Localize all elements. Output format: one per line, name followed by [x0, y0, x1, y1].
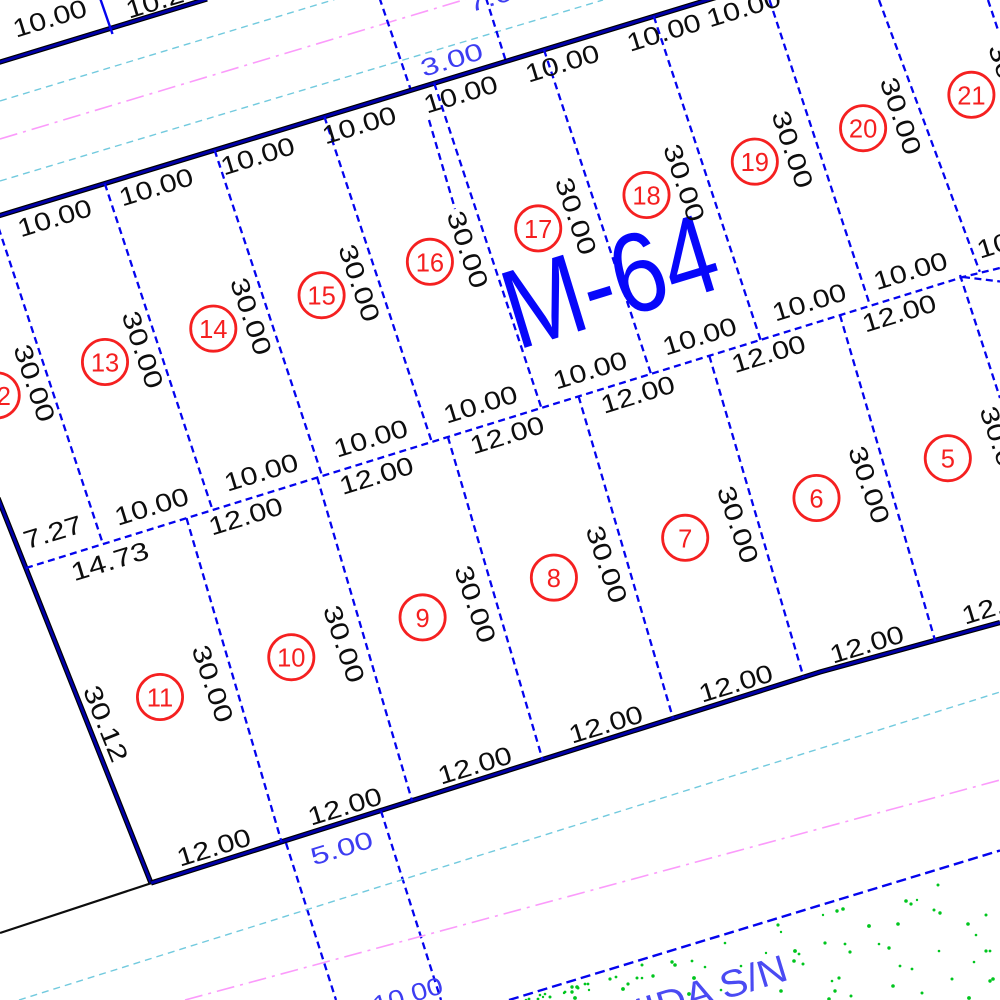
- svg-text:6: 6: [809, 486, 823, 514]
- svg-text:20: 20: [849, 116, 877, 144]
- svg-text:19: 19: [741, 149, 769, 177]
- svg-text:7: 7: [678, 525, 692, 553]
- svg-text:16: 16: [416, 249, 444, 277]
- svg-text:17: 17: [524, 216, 552, 244]
- svg-text:11: 11: [147, 685, 173, 713]
- svg-text:13: 13: [91, 350, 119, 378]
- svg-text:18: 18: [632, 183, 660, 211]
- svg-text:12: 12: [0, 383, 11, 411]
- svg-text:9: 9: [416, 605, 430, 633]
- svg-text:8: 8: [547, 565, 561, 593]
- svg-text:5: 5: [941, 446, 955, 474]
- svg-text:21: 21: [957, 82, 985, 110]
- svg-text:10: 10: [277, 645, 305, 673]
- svg-text:15: 15: [307, 283, 335, 311]
- svg-text:14: 14: [199, 316, 227, 344]
